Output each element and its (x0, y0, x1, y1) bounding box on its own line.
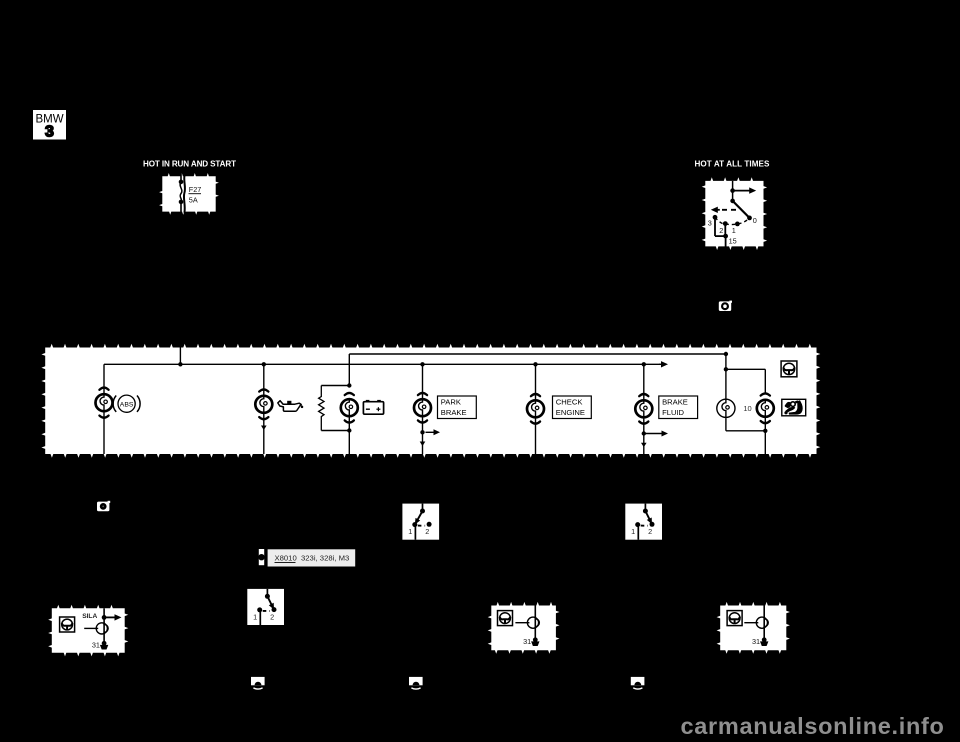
svg-text:F27: F27 (189, 185, 202, 194)
svg-text:HOT AT ALL TIMES: HOT AT ALL TIMES (695, 160, 771, 169)
svg-text:SILA: SILA (82, 613, 97, 620)
svg-text:2: 2 (648, 527, 652, 536)
svg-text:1: 1 (408, 527, 412, 536)
svg-text:1: 1 (253, 613, 257, 622)
svg-text:BRAKE: BRAKE (662, 398, 688, 407)
svg-text:31: 31 (92, 641, 100, 650)
svg-text:31: 31 (752, 637, 760, 646)
svg-text:PARK: PARK (441, 398, 461, 407)
svg-text:3: 3 (45, 124, 54, 141)
svg-text:ENGINE: ENGINE (556, 408, 585, 417)
svg-text:CHECK: CHECK (556, 398, 583, 407)
svg-text:1: 1 (732, 226, 736, 235)
svg-text:ABS: ABS (120, 401, 134, 408)
svg-text:HOT IN RUN AND START: HOT IN RUN AND START (143, 160, 236, 169)
svg-text:1: 1 (631, 527, 635, 536)
svg-text:15: 15 (729, 236, 737, 245)
svg-text:323i, 328i, M3: 323i, 328i, M3 (301, 553, 349, 562)
svg-text:X8010: X8010 (275, 553, 297, 562)
svg-text:BRAKE: BRAKE (441, 408, 467, 417)
svg-text:2: 2 (425, 527, 429, 536)
svg-text:31: 31 (523, 637, 531, 646)
svg-text:0: 0 (753, 216, 757, 225)
svg-text:3: 3 (708, 218, 712, 227)
svg-text:2: 2 (719, 226, 723, 235)
svg-text:2: 2 (270, 613, 274, 622)
svg-text:carmanualsonline.info: carmanualsonline.info (681, 713, 945, 739)
svg-text:5A: 5A (189, 195, 198, 204)
svg-text:FLUID: FLUID (662, 408, 684, 417)
svg-text:10: 10 (743, 404, 751, 413)
